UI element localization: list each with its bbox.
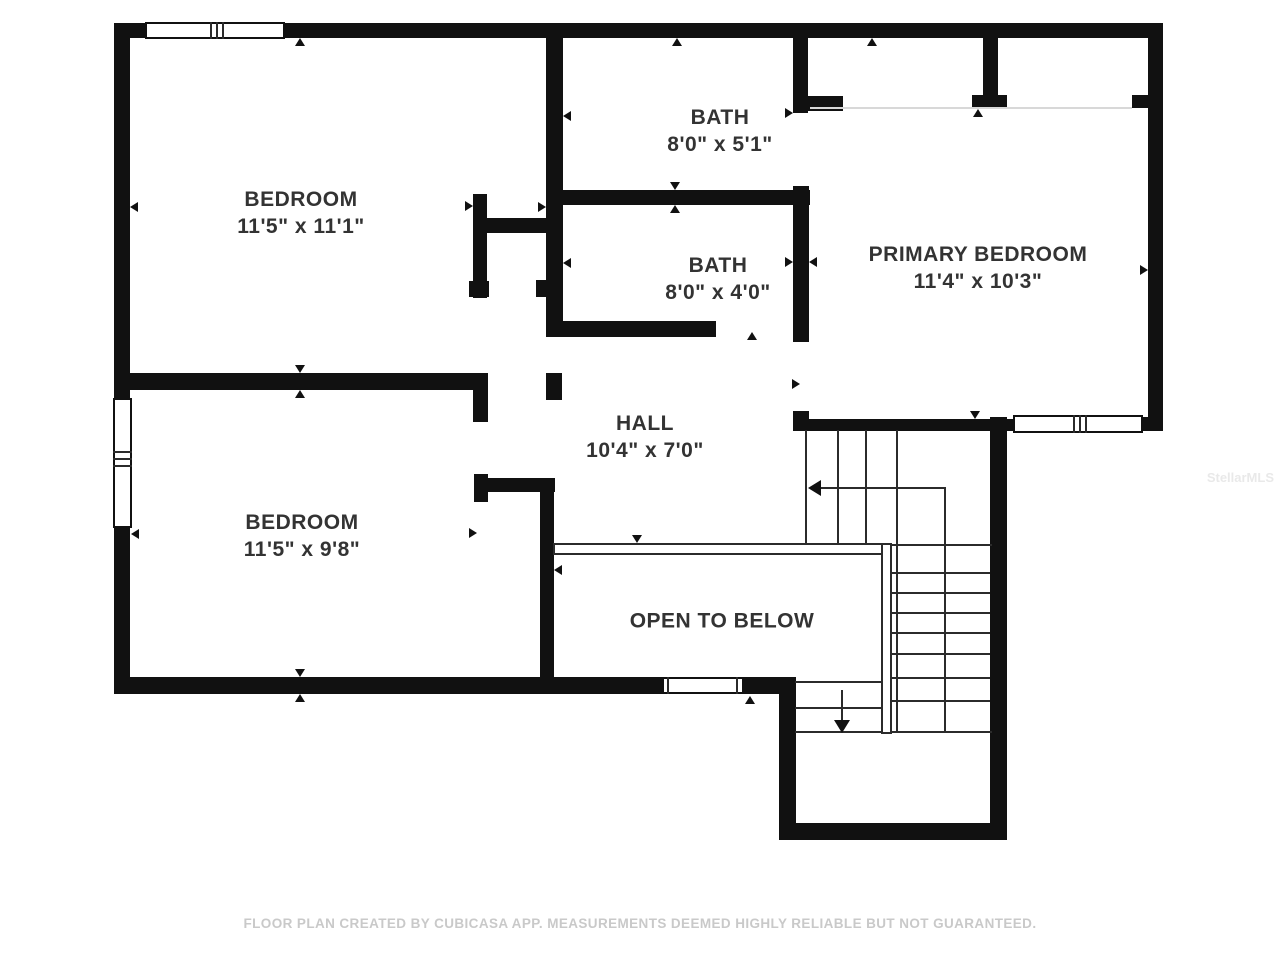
stair-line xyxy=(795,707,883,709)
wall-segment xyxy=(473,373,488,422)
wall-segment xyxy=(562,190,810,205)
wall-marker xyxy=(130,202,138,212)
wall-marker xyxy=(973,109,983,117)
room-label-bath-mid: BATH8'0" x 4'0" xyxy=(665,252,770,306)
stair-line xyxy=(892,677,990,679)
room-dimensions: 11'4" x 10'3" xyxy=(869,268,1088,295)
wall-segment xyxy=(1132,95,1152,108)
window-mullion xyxy=(113,451,132,453)
stair-line xyxy=(892,592,990,594)
wall-segment xyxy=(469,281,489,297)
window-mullion xyxy=(113,458,132,460)
room-dimensions: 11'5" x 11'1" xyxy=(237,213,365,240)
wall-marker xyxy=(1140,265,1148,275)
wall-marker xyxy=(295,365,305,373)
wall-marker xyxy=(867,38,877,46)
window-mullion xyxy=(1085,415,1087,433)
window xyxy=(1013,415,1143,433)
room-name: HALL xyxy=(586,410,704,437)
stair-line xyxy=(892,700,990,702)
wall-marker xyxy=(672,38,682,46)
stair-up-arrow-head xyxy=(808,480,821,496)
window-mullion xyxy=(216,22,218,39)
room-name: BEDROOM xyxy=(237,186,365,213)
wall-segment xyxy=(114,373,488,390)
floorplan-disclaimer: FLOOR PLAN CREATED BY CUBICASA APP. MEAS… xyxy=(0,916,1280,931)
wall-marker xyxy=(792,379,800,389)
wall-segment xyxy=(990,417,1007,840)
wall-segment xyxy=(540,478,554,693)
stair-line xyxy=(892,612,990,614)
stair-line xyxy=(896,430,898,733)
stair-line xyxy=(892,572,990,574)
window-mullion xyxy=(736,677,738,694)
wall-marker xyxy=(747,332,757,340)
room-name: BATH xyxy=(665,252,770,279)
room-label-bath-top: BATH8'0" x 5'1" xyxy=(667,104,772,158)
wall-segment xyxy=(114,23,130,692)
wall-marker xyxy=(785,257,793,267)
wall-marker xyxy=(563,111,571,121)
window-mullion xyxy=(222,22,224,39)
room-name: PRIMARY BEDROOM xyxy=(869,241,1088,268)
wall-marker xyxy=(670,205,680,213)
wall-marker xyxy=(632,535,642,543)
window xyxy=(662,677,744,694)
wall-marker xyxy=(554,565,562,575)
room-dimensions: 8'0" x 4'0" xyxy=(665,279,770,306)
wall-segment xyxy=(779,677,796,840)
stair-line xyxy=(892,653,990,655)
wall-marker xyxy=(131,529,139,539)
room-name: OPEN TO BELOW xyxy=(630,608,815,635)
wall-segment xyxy=(546,373,562,400)
wall-marker xyxy=(295,694,305,702)
floor-plan: FLOOR PLAN CREATED BY CUBICASA APP. MEAS… xyxy=(0,0,1280,960)
window-mullion xyxy=(1073,415,1075,433)
room-label-primary-bedroom: PRIMARY BEDROOM11'4" x 10'3" xyxy=(869,241,1088,295)
open-to-below-railing xyxy=(553,543,892,555)
stair-line xyxy=(892,632,990,634)
wall-marker xyxy=(745,696,755,704)
room-label-hall: HALL10'4" x 7'0" xyxy=(586,410,704,464)
wall-segment xyxy=(983,38,998,96)
wall-marker xyxy=(465,201,473,211)
room-dimensions: 8'0" x 5'1" xyxy=(667,131,772,158)
wall-segment xyxy=(1140,417,1163,431)
window-mullion xyxy=(667,677,669,694)
wall-marker xyxy=(563,258,571,268)
stair-line xyxy=(944,488,946,733)
wall-segment xyxy=(779,823,1007,840)
wall-segment xyxy=(536,280,546,297)
room-label-open-to-below: OPEN TO BELOW xyxy=(630,608,815,635)
mls-watermark: StellarMLS xyxy=(1207,470,1274,485)
wall-marker xyxy=(809,257,817,267)
stair-line xyxy=(816,487,946,489)
window-mullion xyxy=(210,22,212,39)
wall-segment xyxy=(546,23,563,337)
window xyxy=(113,398,132,528)
room-name: BATH xyxy=(667,104,772,131)
wall-marker xyxy=(785,108,793,118)
wall-marker xyxy=(970,411,980,419)
wall-segment xyxy=(793,419,1017,431)
closet-front-line xyxy=(810,107,1132,109)
room-label-bedroom-bottom: BEDROOM11'5" x 9'8" xyxy=(244,509,361,563)
wall-segment xyxy=(483,218,550,233)
wall-segment xyxy=(793,186,809,342)
room-label-bedroom-top: BEDROOM11'5" x 11'1" xyxy=(237,186,365,240)
open-to-below-railing xyxy=(881,543,892,734)
wall-marker xyxy=(295,669,305,677)
wall-marker xyxy=(295,390,305,398)
window-mullion xyxy=(1079,415,1081,433)
wall-marker xyxy=(469,528,477,538)
wall-segment xyxy=(1148,23,1163,431)
wall-marker xyxy=(295,38,305,46)
window xyxy=(145,22,285,39)
stair-line xyxy=(795,681,883,683)
room-name: BEDROOM xyxy=(244,509,361,536)
wall-marker xyxy=(538,202,546,212)
window-mullion xyxy=(113,465,132,467)
wall-segment xyxy=(546,321,716,337)
stair-down-arrow-head xyxy=(834,720,850,733)
wall-marker xyxy=(670,182,680,190)
stair-line xyxy=(795,731,992,733)
stair-line xyxy=(805,430,807,544)
room-dimensions: 11'5" x 9'8" xyxy=(244,536,361,563)
room-dimensions: 10'4" x 7'0" xyxy=(586,437,704,464)
